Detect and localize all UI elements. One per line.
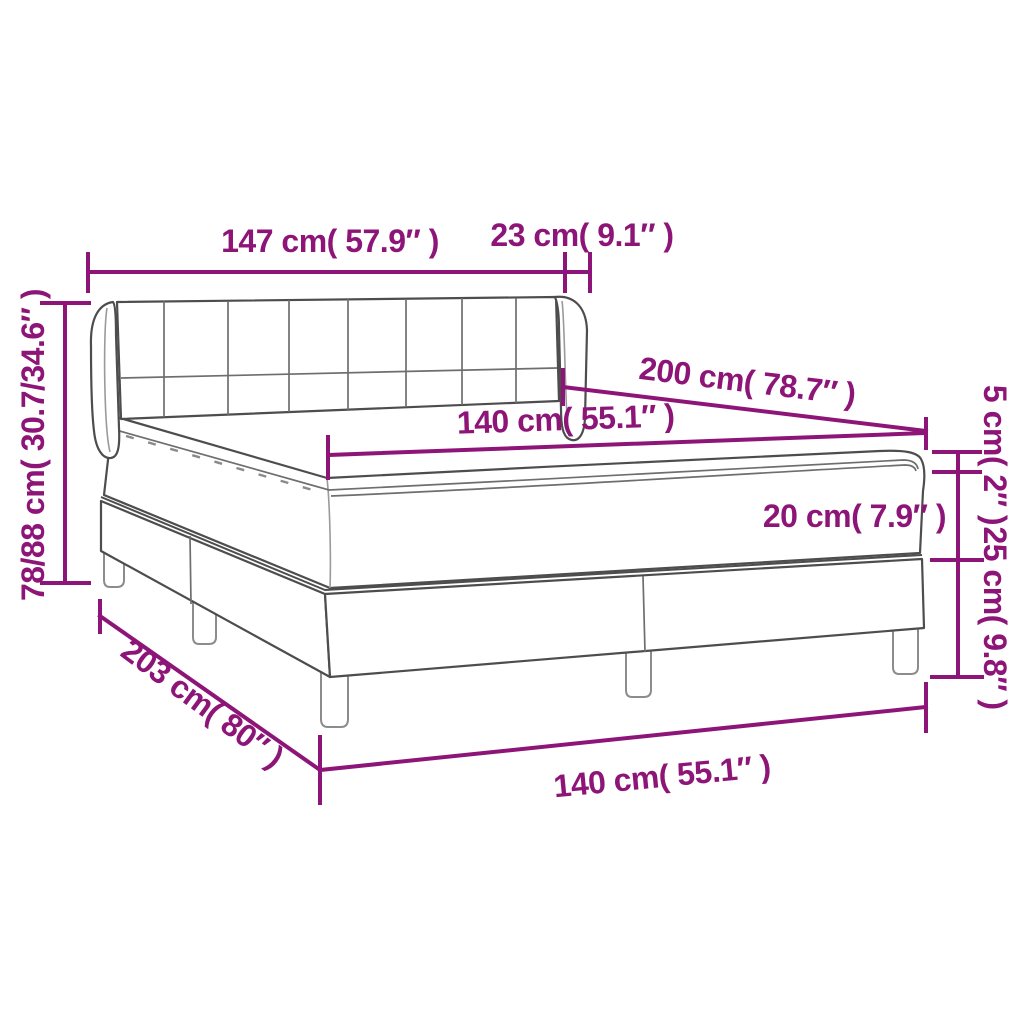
label-mattress-width: 140 cm( 55.1″ ) (456, 397, 675, 441)
dim-base-width: 140 cm( 55.1″ ) (320, 684, 926, 804)
dim-overall-height: 78/88 cm( 30.7/34.6″ ) (15, 289, 89, 601)
label-base-width: 140 cm( 55.1″ ) (552, 748, 772, 805)
label-headboard-width: 147 cm( 57.9″ ) (221, 223, 439, 259)
leg-front-middle (626, 646, 651, 697)
label-base-height: 25 cm( 9.8″ ) (977, 526, 1013, 709)
dim-headboard-width: 147 cm( 57.9″ ) 23 cm( 9.1″ ) (88, 217, 674, 291)
bed-dimension-drawing: 147 cm( 57.9″ ) 23 cm( 9.1″ ) 78/88 cm( … (0, 0, 1024, 1024)
base-split-seam-left (190, 536, 191, 604)
label-frame-length: 203 cm( 80″ ) (115, 632, 291, 775)
label-overall-height: 78/88 cm( 30.7/34.6″ ) (15, 289, 51, 601)
label-mattress-thickness: 20 cm( 7.9″ ) (763, 498, 946, 534)
label-topper-thickness: 5 cm( 2″ ) (977, 385, 1013, 525)
product-dimension-diagram: 147 cm( 57.9″ ) 23 cm( 9.1″ ) 78/88 cm( … (0, 0, 1024, 1024)
label-headboard-side-depth: 23 cm( 9.1″ ) (490, 217, 673, 253)
headboard-panel (117, 297, 559, 419)
